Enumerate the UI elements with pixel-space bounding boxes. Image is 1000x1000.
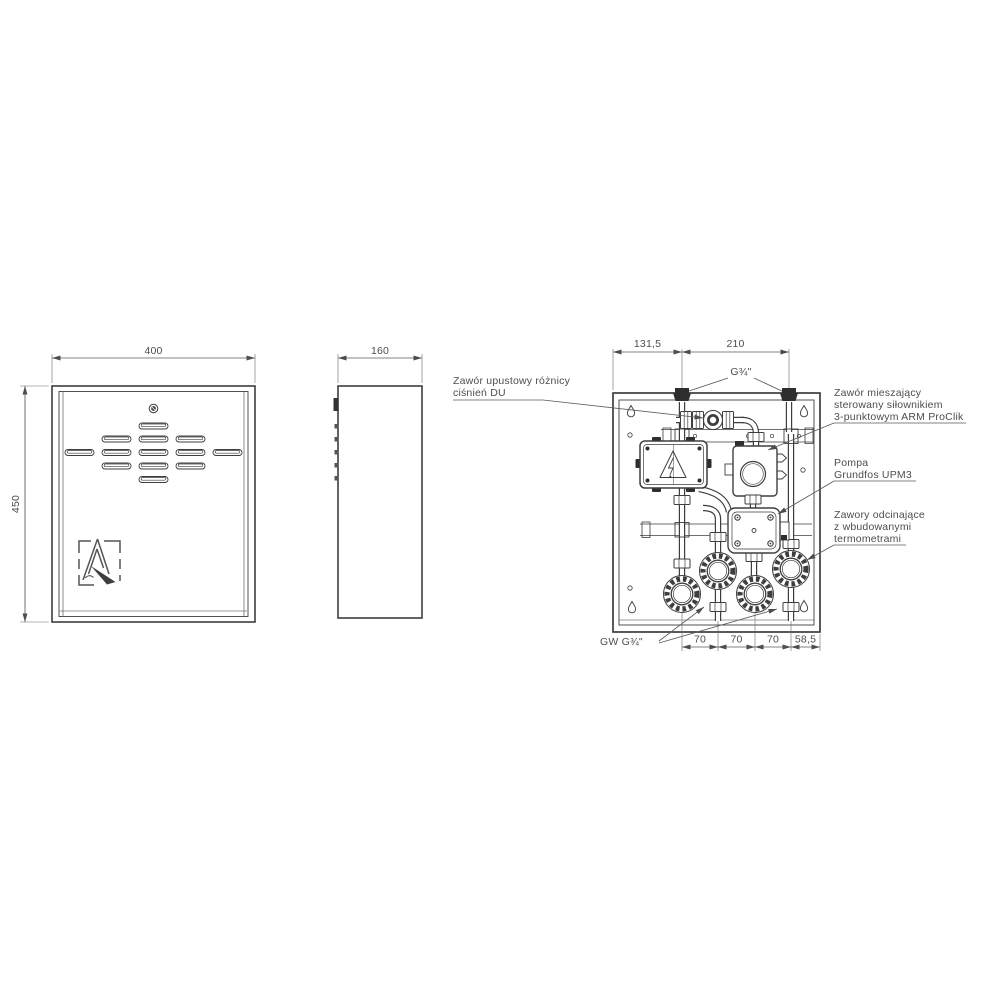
side-width-dimension: 160 xyxy=(338,345,422,383)
front-cabinet xyxy=(52,386,255,622)
shutoff-valve-3 xyxy=(737,576,774,613)
front-height-dimension: 450 xyxy=(10,386,49,622)
front-width-dimension: 400 xyxy=(52,345,255,383)
dim-70-2: 70 xyxy=(730,634,742,646)
mixing-valve-label-line2: sterowany siłownikiem xyxy=(834,399,943,411)
side-view: 160 xyxy=(334,345,423,618)
pump xyxy=(728,508,789,553)
dim-70-1: 70 xyxy=(694,634,706,646)
mixing-valve-label-line1: Zawór mieszający xyxy=(834,387,922,399)
junction-box xyxy=(636,437,712,492)
label-shutoff-valves: Zawory odcinające z wbudowanymi termomet… xyxy=(807,509,925,560)
du-valve-label-line2: ciśnień DU xyxy=(453,387,506,399)
shutoff-label-line2: z wbudowanymi xyxy=(834,521,911,533)
top-port-size: G¾" xyxy=(730,366,751,378)
front-width-value: 400 xyxy=(144,345,162,357)
top-connection-label: G¾" xyxy=(686,366,784,392)
front-view: 400 450 xyxy=(10,345,255,622)
bottom-dimensions: 70 70 70 58,5 xyxy=(682,634,820,648)
side-cabinet xyxy=(334,386,423,618)
internal-top-dimensions: 131,5 210 xyxy=(613,338,789,392)
dim-70-3: 70 xyxy=(767,634,779,646)
mixing-valve-label-line3: 3-punktowym ARM ProClik xyxy=(834,411,964,423)
shutoff-valve-4 xyxy=(773,551,810,588)
shutoff-valve-2 xyxy=(700,553,737,590)
front-height-value: 450 xyxy=(10,495,22,513)
shutoff-label-line1: Zawory odcinające xyxy=(834,509,925,521)
technical-drawing-page: 400 450 xyxy=(0,0,1000,1000)
side-width-value: 160 xyxy=(371,345,389,357)
dim-131-5: 131,5 xyxy=(634,338,661,350)
dim-210: 210 xyxy=(726,338,744,350)
pump-label-line1: Pompa xyxy=(834,457,868,469)
du-valve-label-line1: Zawór upustowy różnicy xyxy=(453,375,571,387)
shutoff-label-line3: termometrami xyxy=(834,533,901,545)
shutoff-valve-1 xyxy=(664,576,701,613)
pump-label-line2: Grundfos UPM3 xyxy=(834,469,912,481)
drawing-canvas: 400 450 xyxy=(0,0,1000,1000)
internal-view: 131,5 210 G¾" xyxy=(453,338,966,651)
bottom-port-size: GW G¾" xyxy=(600,636,643,648)
dim-58-5: 58,5 xyxy=(795,634,816,646)
du-valve xyxy=(704,411,723,430)
